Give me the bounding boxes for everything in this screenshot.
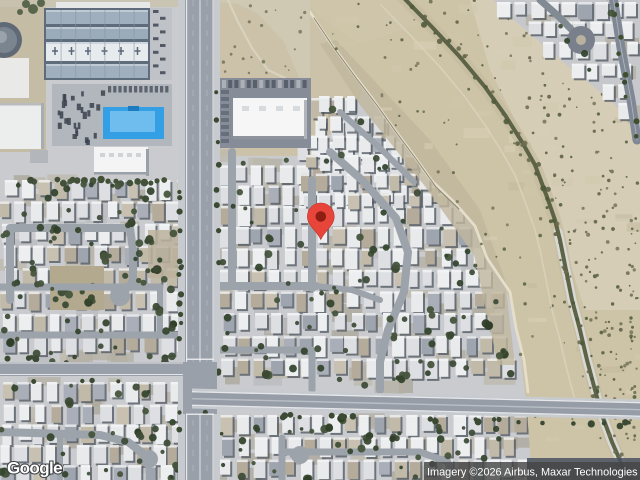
svg-text:Google: Google — [7, 459, 62, 478]
svg-text:Imagery ©2026 Airbus, Maxar Te: Imagery ©2026 Airbus, Maxar Technologies — [427, 467, 638, 479]
